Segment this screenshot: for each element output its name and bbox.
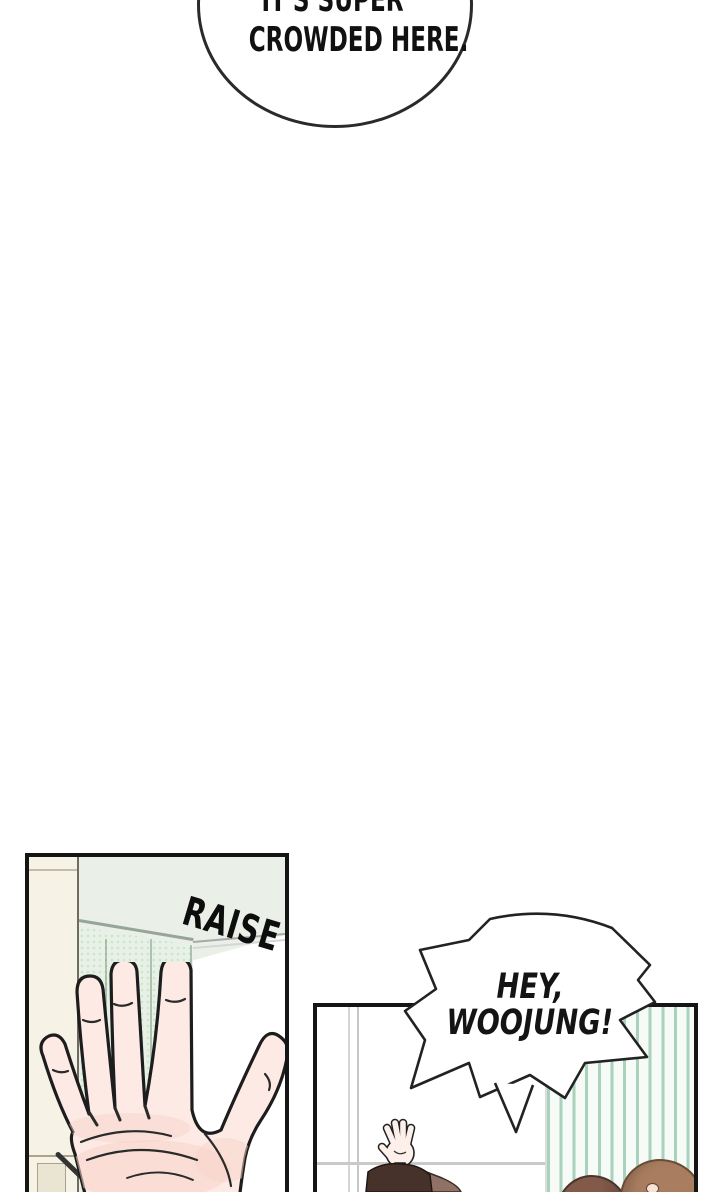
top-bubble-line2: CROWDED HERE. xyxy=(197,20,467,60)
shout-bubble-tail xyxy=(495,1083,533,1132)
top-bubble-line1: IT'S SUPER xyxy=(197,0,467,20)
cabinet-shelf-line xyxy=(29,869,77,871)
shout-line2: WOOJUNG! xyxy=(395,1005,665,1041)
shout-bubble: HEY, WOOJUNG! xyxy=(395,905,665,1140)
top-speech-bubble-text: IT'S SUPER CROWDED HERE. xyxy=(197,0,467,60)
ear-highlight xyxy=(646,1183,659,1192)
arm-sleeve-dark-cuff xyxy=(366,1164,432,1192)
raised-hand-illustration xyxy=(29,962,285,1192)
panel-raise-hand: RAISE xyxy=(25,853,289,1192)
shout-line1: HEY, xyxy=(395,969,665,1005)
shout-bubble-text: HEY, WOOJUNG! xyxy=(395,969,665,1041)
